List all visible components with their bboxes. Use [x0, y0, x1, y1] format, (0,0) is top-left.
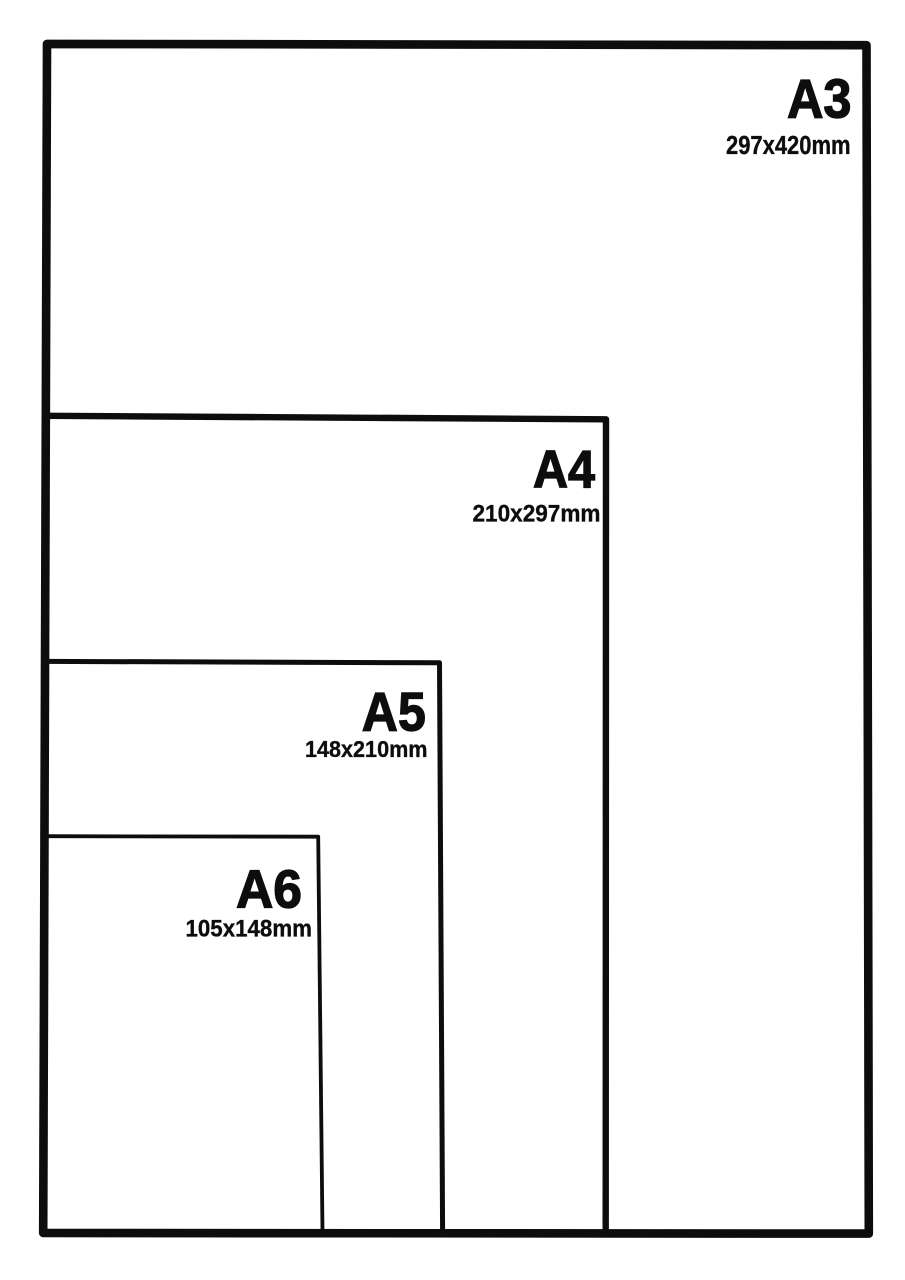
- svg-text:A5: A5: [362, 680, 426, 742]
- svg-text:A4: A4: [533, 441, 595, 500]
- svg-text:A6: A6: [236, 860, 302, 920]
- svg-text:297x420mm: 297x420mm: [726, 132, 851, 160]
- svg-text:A3: A3: [787, 69, 852, 130]
- svg-text:105x148mm: 105x148mm: [186, 916, 313, 943]
- svg-text:148x210mm: 148x210mm: [305, 736, 428, 762]
- svg-text:210x297mm: 210x297mm: [473, 501, 601, 528]
